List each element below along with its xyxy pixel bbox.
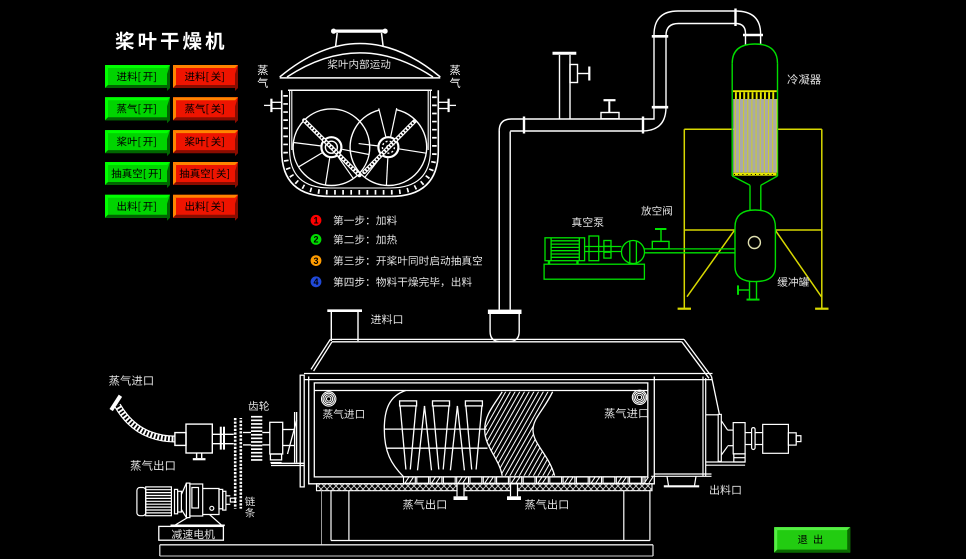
svg-text:2: 2 (313, 235, 318, 245)
svg-text:3: 3 (313, 256, 318, 266)
svg-text:1: 1 (313, 216, 318, 226)
svg-text:4: 4 (313, 277, 318, 287)
